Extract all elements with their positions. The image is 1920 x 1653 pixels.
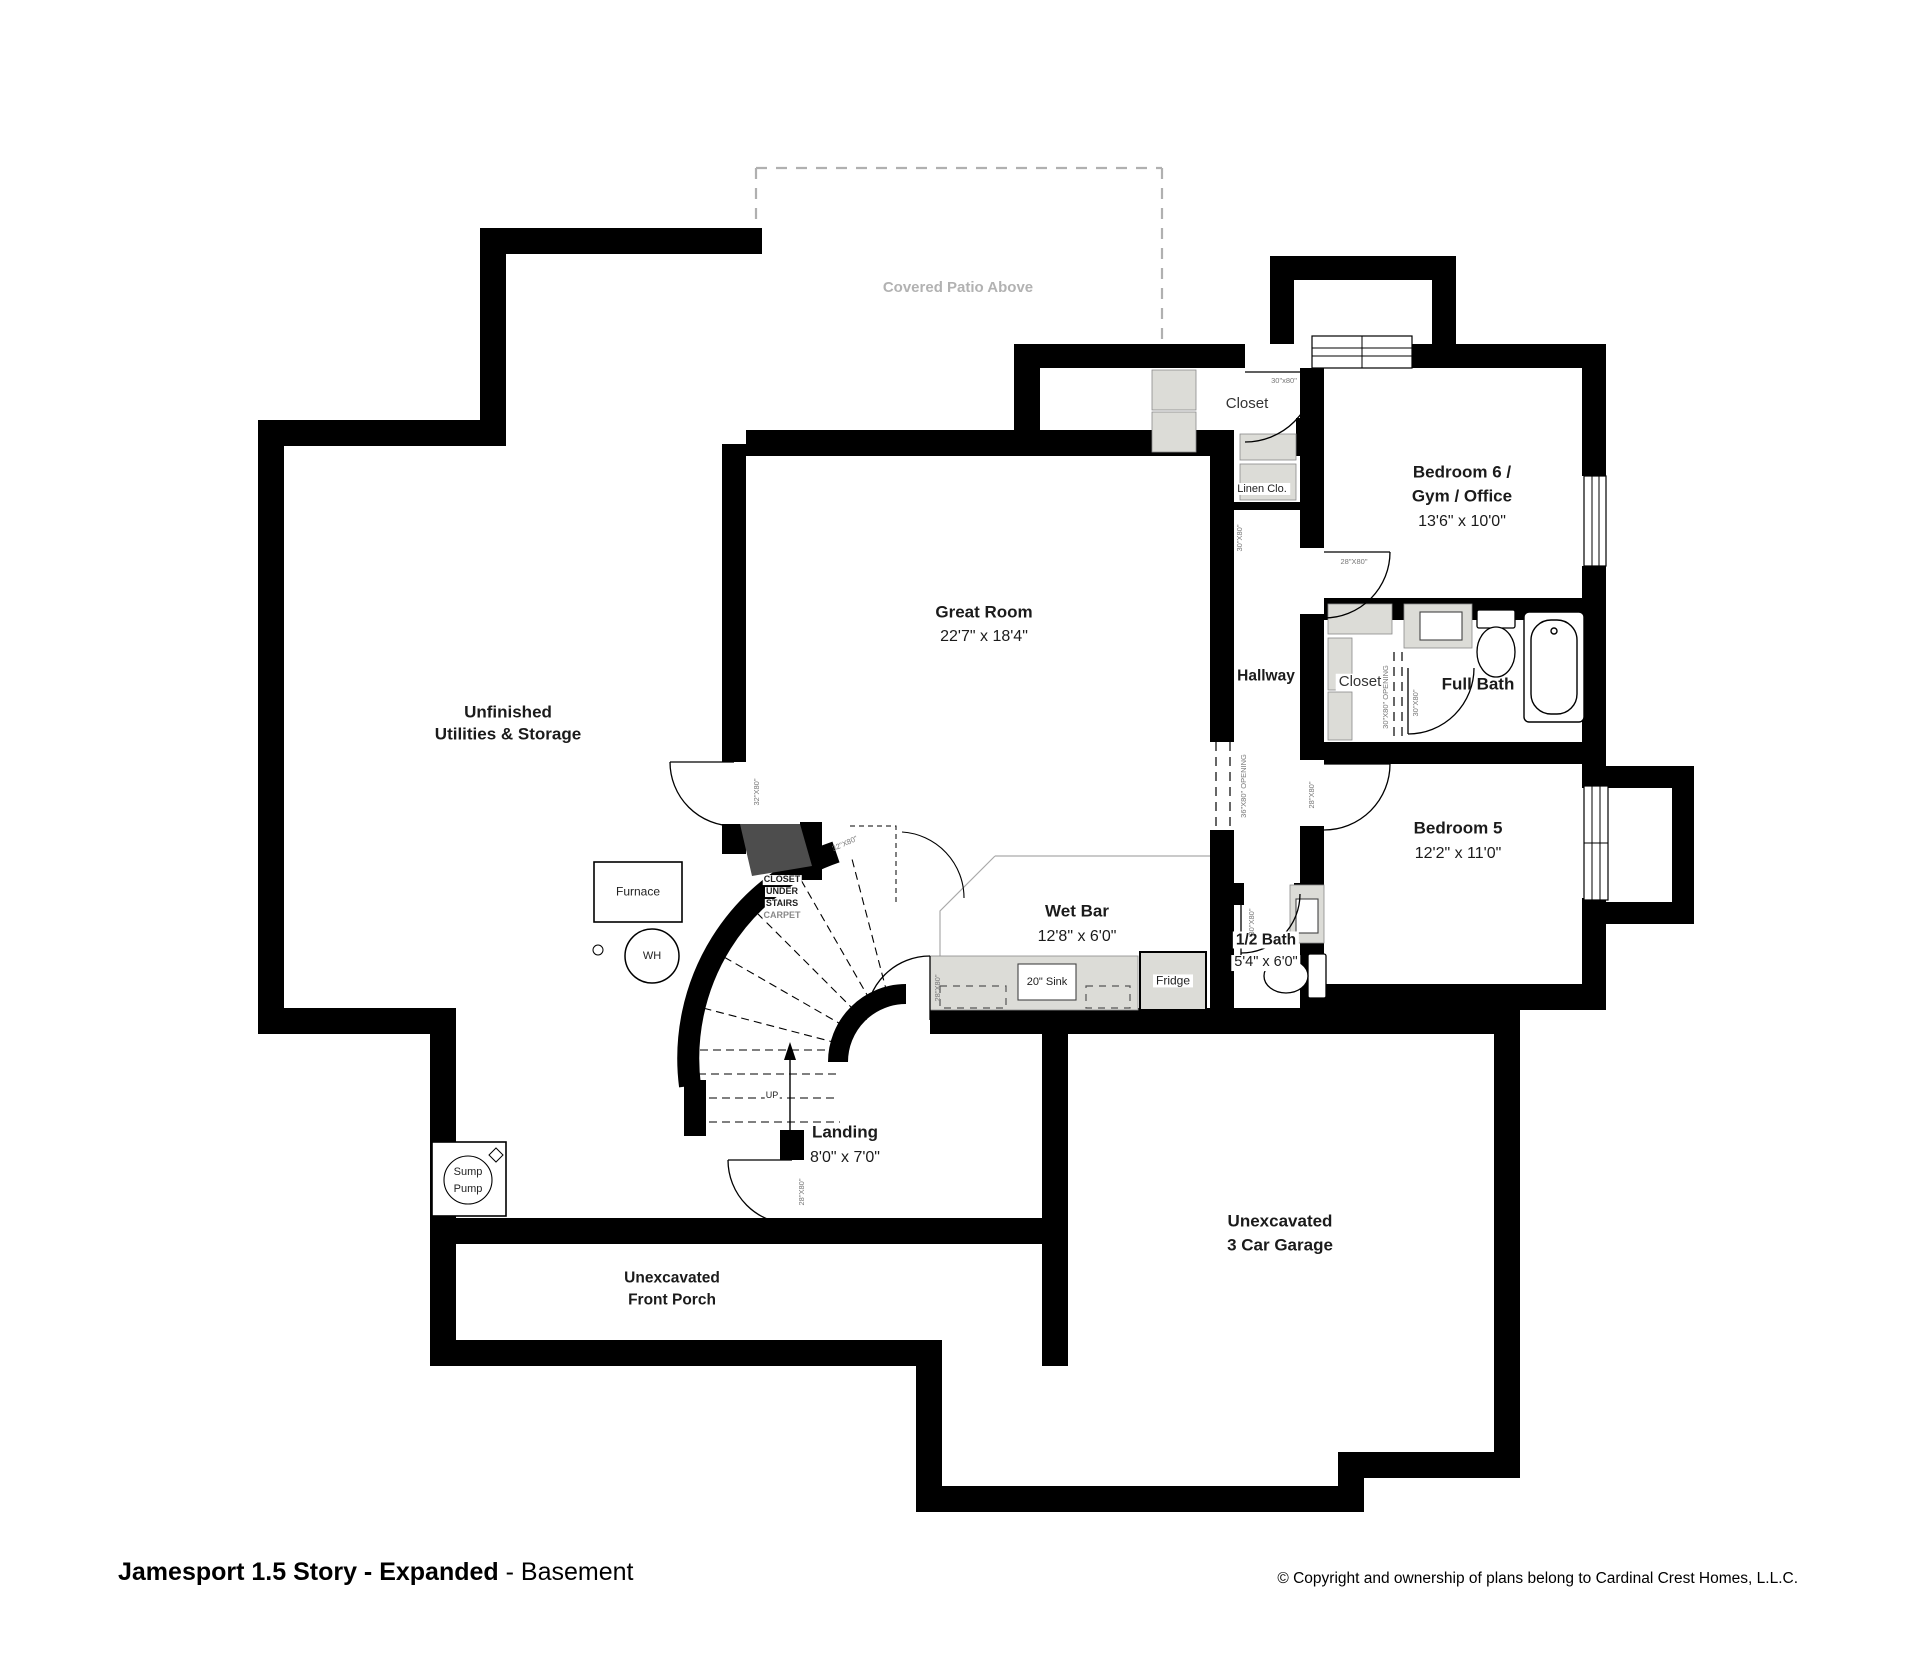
water-heater-label: WH: [643, 950, 661, 962]
closet-mid-label: Closet: [1336, 674, 1385, 691]
door-size-landing: 28"X80": [798, 1178, 806, 1205]
sump-pump-label-line1: Sump: [454, 1166, 483, 1178]
garage-label-line2: 3 Car Garage: [1227, 1237, 1333, 1256]
great-room-dims: 22'7" x 18'4": [940, 628, 1028, 646]
staircase: [688, 824, 964, 1134]
stair-closet-label-line1: CLOSET: [763, 875, 802, 885]
door-size-full-bath: 30"X80": [1412, 689, 1420, 716]
stair-closet-label-line3: STAIRS: [765, 899, 799, 909]
full-bath-label: Full Bath: [1442, 676, 1515, 695]
door-size-bedroom5: 28"X80": [1308, 781, 1316, 808]
landing-dims: 8'0" x 7'0": [810, 1149, 880, 1167]
unfinished-label-line1: Unfinished: [464, 704, 552, 723]
stair-closet-label-line2: UNDER: [765, 887, 799, 897]
stair-carpet-label: CARPET: [762, 911, 801, 921]
closet-top-label: Closet: [1226, 396, 1269, 413]
full-bath-toilet: [1477, 610, 1515, 677]
floor-drain: [593, 945, 603, 955]
door-size-closet-top: 30"x80": [1271, 377, 1297, 385]
plan-title-bold: Jamesport 1.5 Story - Expanded: [118, 1558, 499, 1586]
half-bath-dims: 5'4" x 6'0": [1231, 955, 1300, 971]
copyright-notice: © Copyright and ownership of plans belon…: [1277, 1570, 1798, 1588]
bedroom5-dims: 12'2" x 11'0": [1415, 845, 1502, 863]
utility-room-door: [670, 762, 734, 826]
door-size-wet-bar: 28"X80": [934, 974, 942, 1001]
covered-patio-label: Covered Patio Above: [883, 280, 1033, 297]
fridge-label: Fridge: [1153, 974, 1193, 987]
bedroom6-side-window: [1584, 476, 1606, 566]
covered-patio-outline: [756, 168, 1162, 342]
wet-bar-dims: 12'8" x 6'0": [1038, 928, 1117, 946]
bedroom6-label-line2: Gym / Office: [1412, 488, 1512, 507]
bedroom5-window: [1584, 786, 1608, 900]
landing-utility-door: [728, 1160, 792, 1224]
sump-pump-fixture: [432, 1142, 506, 1216]
full-bath-sink: [1420, 612, 1462, 640]
landing-label: Landing: [812, 1124, 878, 1143]
door-size-half-bath: 30"X80": [1248, 908, 1256, 935]
hallway-label: Hallway: [1237, 667, 1295, 684]
front-porch-label-line1: Unexcavated: [624, 1269, 720, 1286]
floor-plan: Covered Patio Above Unfinished Utilities…: [0, 0, 1920, 1653]
bedroom5-label: Bedroom 5: [1414, 820, 1503, 839]
garage-label-line1: Unexcavated: [1228, 1213, 1333, 1232]
half-bath-label: 1/2 Bath: [1233, 931, 1299, 948]
stair-up-arrow: [784, 1042, 796, 1134]
bedroom6-label-line1: Bedroom 6 /: [1413, 464, 1511, 483]
door-size-bedroom6: 28"X80": [1340, 558, 1367, 566]
bedroom6-top-window: [1312, 336, 1412, 368]
linen-closet-label: Linen Clo.: [1234, 483, 1290, 495]
opening-size-hallway: 36"X80" OPENING: [1240, 754, 1248, 818]
closet-opening: [1394, 652, 1402, 740]
stair-up-label: UP: [765, 1091, 780, 1101]
sink-label: 20" Sink: [1027, 976, 1068, 988]
wet-bar-label: Wet Bar: [1045, 903, 1109, 922]
floor-plan-drawing: [0, 0, 1920, 1653]
great-room-label: Great Room: [935, 604, 1032, 623]
plan-title: Jamesport 1.5 Story - Expanded - Basemen…: [118, 1558, 633, 1587]
bathtub: [1524, 612, 1584, 722]
door-size-linen: 30"X80": [1236, 524, 1244, 551]
front-porch-label-line2: Front Porch: [628, 1291, 716, 1308]
counters-and-shelves: [930, 370, 1472, 1010]
bedroom5-door: [1324, 764, 1390, 830]
plan-title-rest: - Basement: [499, 1558, 634, 1586]
door-size-utility: 32"X80": [753, 778, 761, 805]
unfinished-label-line2: Utilities & Storage: [435, 726, 581, 745]
opening-size-closet: 30"X80" OPENING: [1382, 665, 1390, 729]
sump-pump-label-line2: Pump: [454, 1183, 483, 1195]
walls: [258, 228, 1694, 1512]
furnace-label: Furnace: [616, 885, 660, 898]
bedroom6-dims: 13'6" x 10'0": [1418, 513, 1506, 531]
hallway-opening: [1216, 742, 1230, 830]
stair-closet-door-arc: [902, 832, 964, 898]
